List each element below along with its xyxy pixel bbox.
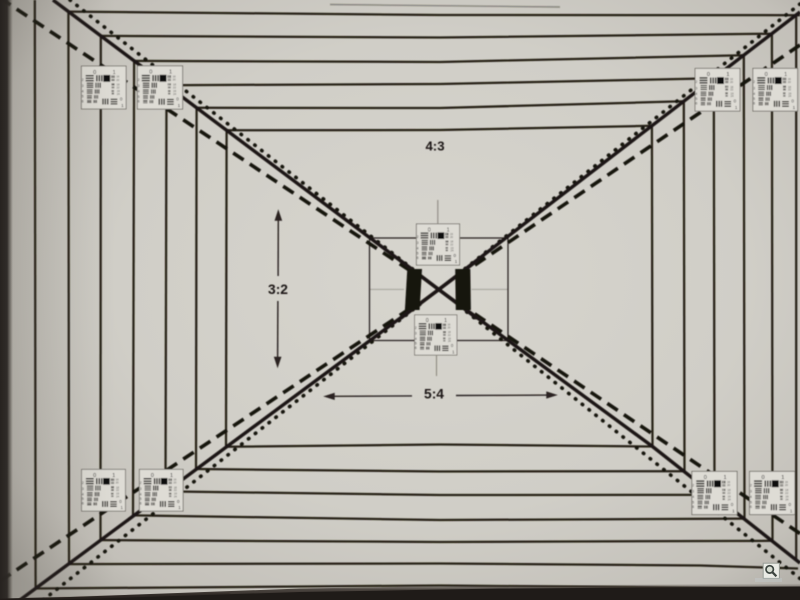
svg-text:4:3: 4:3 [425, 138, 444, 153]
svg-text:5:4: 5:4 [424, 387, 444, 402]
svg-text:3:2: 3:2 [268, 282, 288, 297]
